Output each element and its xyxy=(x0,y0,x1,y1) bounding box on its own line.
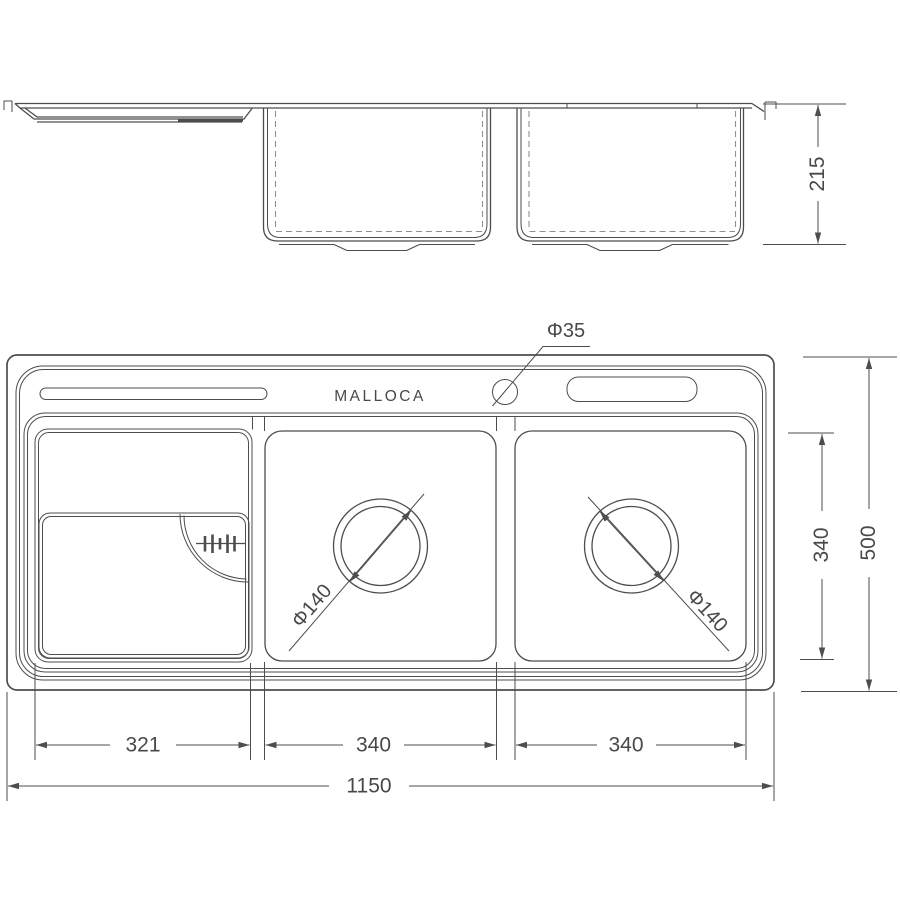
bowl1-inner-wall xyxy=(268,108,488,238)
depth-value: 215 xyxy=(806,156,829,191)
right-clip xyxy=(765,102,776,120)
dim-overall-width: 500 xyxy=(857,525,880,560)
dim-left-compartment: 321 xyxy=(125,734,160,757)
bowl2-inner-wall xyxy=(521,108,741,238)
bowl1-drain-bottom xyxy=(279,245,475,251)
side-view: 215 xyxy=(4,101,846,251)
bowl1-outer-wall xyxy=(264,108,491,241)
sub-tray-inner xyxy=(43,517,246,655)
bowl2-drain-bottom xyxy=(532,245,729,251)
dish-hatch-mark xyxy=(196,535,245,554)
dim-overall-length: 1150 xyxy=(346,775,391,798)
bowl2-hidden-lines xyxy=(529,111,736,232)
right-dimensions: 340 500 xyxy=(788,357,897,692)
corner-dish-arcs xyxy=(180,514,248,582)
dim-right-bowl: 340 xyxy=(608,734,643,757)
brand-text: MALLOCA xyxy=(334,388,426,405)
bowl-region-outer xyxy=(24,413,758,672)
drainer-slot xyxy=(40,388,267,400)
bowl2-outer-wall xyxy=(517,108,744,241)
rim-profile xyxy=(15,104,764,112)
bowl1-hidden-lines xyxy=(276,111,483,232)
sink-outer-edge xyxy=(7,355,774,690)
dim-bowl-front-to-back: 340 xyxy=(810,527,833,562)
plan-view: MALLOCA Φ35 Φ140 Φ140 xyxy=(7,320,897,801)
depth-extension-lines xyxy=(763,104,846,245)
faucet-hole-label: Φ35 xyxy=(547,320,585,342)
sink-technical-drawing: 215 MALLOCA Φ35 xyxy=(0,0,900,900)
dimension-depth: 215 xyxy=(763,104,846,245)
sub-tray-outer xyxy=(39,513,249,658)
drain-label-right: Φ140 xyxy=(682,585,732,636)
left-tray-inner xyxy=(39,433,249,659)
deck-rim-inner xyxy=(20,370,763,677)
dim-middle-bowl: 340 xyxy=(356,734,391,757)
bowl-region-inner xyxy=(28,417,755,669)
middle-drain-diameter-line xyxy=(289,494,424,651)
right-extension-lines xyxy=(788,357,897,692)
bottom-dimensions: 321 340 340 1150 xyxy=(7,662,774,801)
drawing-svg: 215 MALLOCA Φ35 xyxy=(0,0,900,900)
divider-connectors xyxy=(253,417,516,431)
left-clip xyxy=(4,101,12,112)
accessory-slot xyxy=(567,377,697,402)
rim-ticks xyxy=(567,104,697,109)
